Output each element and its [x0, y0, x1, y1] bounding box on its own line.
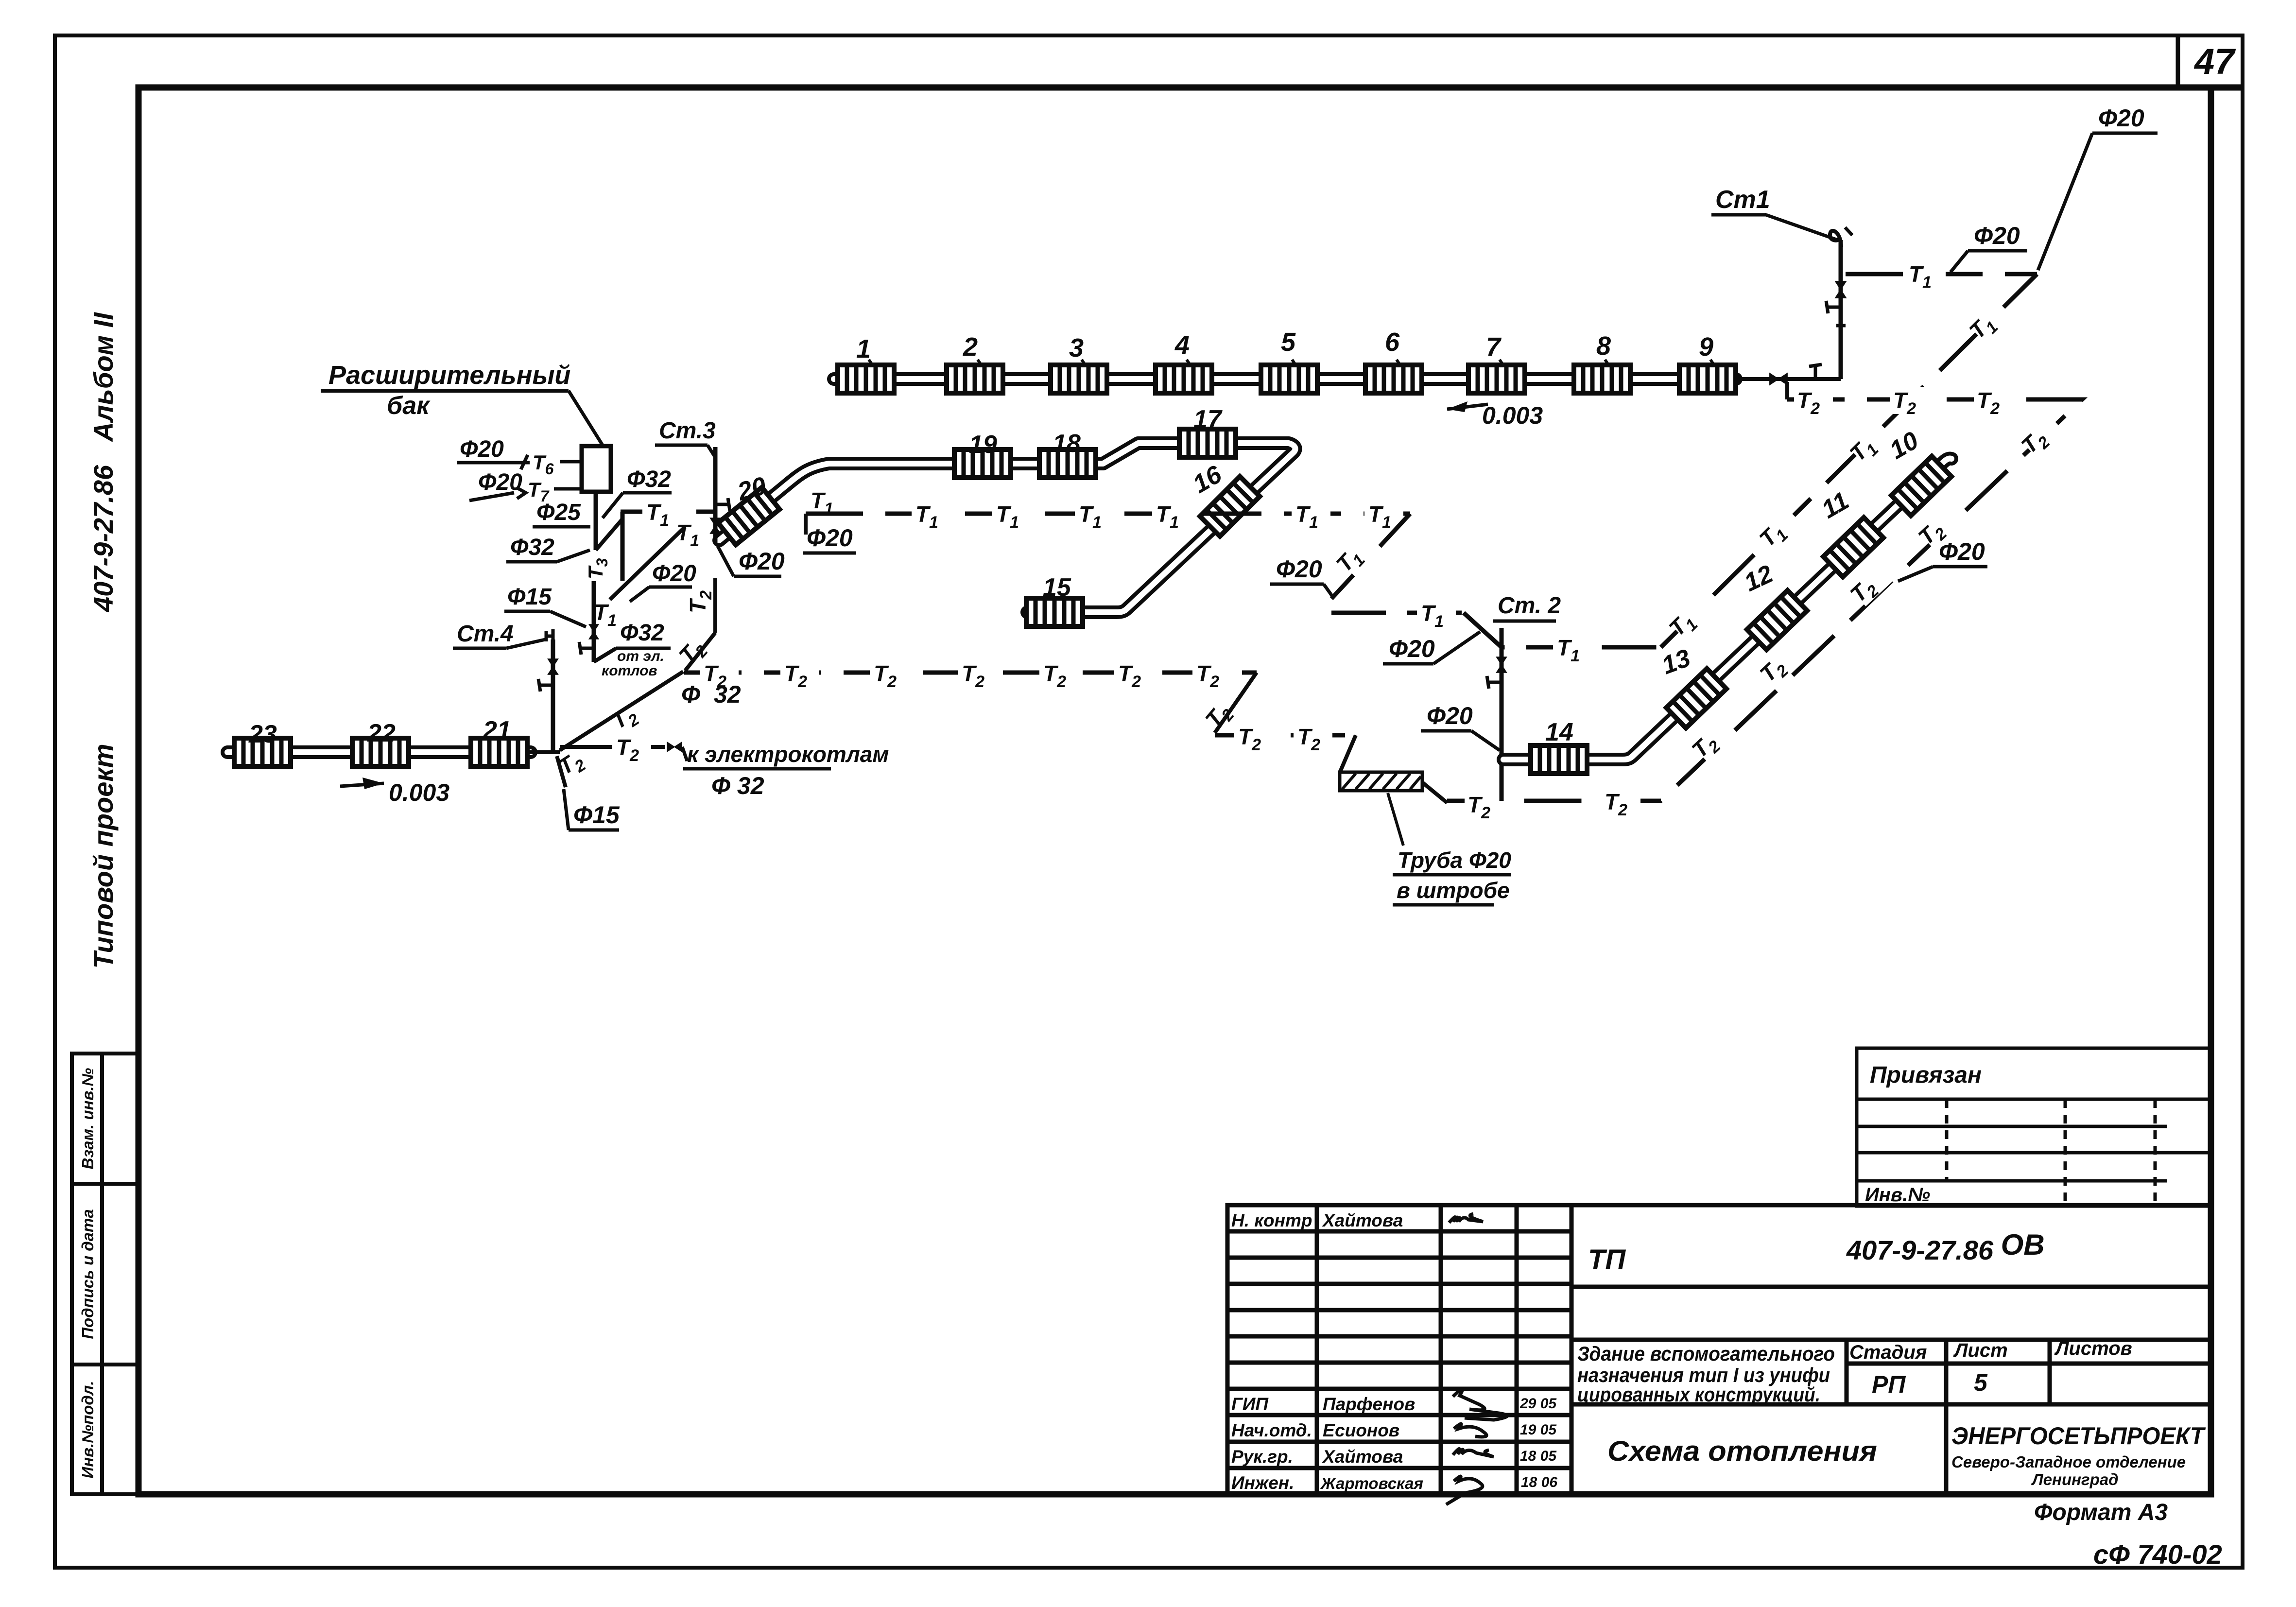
svg-text:Ф25: Ф25 [536, 500, 581, 525]
svg-text:29 05: 29 05 [1519, 1396, 1557, 1412]
svg-text:Ф20: Ф20 [1974, 222, 2020, 249]
svg-text:Ф15: Ф15 [507, 584, 552, 610]
svg-text:ЭНЕРГОСЕТЬПРОЕКТ: ЭНЕРГОСЕТЬПРОЕКТ [1951, 1422, 2206, 1450]
svg-text:Н. контр: Н. контр [1231, 1210, 1312, 1230]
svg-text:Ф20: Ф20 [1939, 538, 1985, 565]
svg-text:Ф20: Ф20 [1389, 635, 1435, 662]
svg-text:9: 9 [1699, 332, 1713, 362]
svg-text:Ф15: Ф15 [573, 801, 620, 829]
svg-text:6: 6 [1385, 328, 1400, 357]
svg-text:цированных конструкций.: цированных конструкций. [1577, 1383, 1820, 1406]
svg-text:Ф20: Ф20 [807, 524, 853, 552]
svg-text:Северо-Западное отделение: Северо-Западное отделение [1951, 1453, 2186, 1471]
svg-text:Ленинград: Ленинград [2031, 1470, 2119, 1488]
svg-text:Ф20: Ф20 [460, 436, 504, 462]
svg-text:от эл.: от эл. [617, 648, 664, 664]
svg-text:19 05: 19 05 [1520, 1422, 1557, 1438]
svg-text:Ф20: Ф20 [739, 548, 785, 575]
svg-text:Альбом II: Альбом II [88, 312, 119, 443]
svg-text:Стадия: Стадия [1849, 1342, 1927, 1363]
svg-text:Рук.гр.: Рук.гр. [1231, 1447, 1293, 1467]
svg-text:РП: РП [1872, 1371, 1906, 1398]
svg-text:Формат А3: Формат А3 [2034, 1500, 2168, 1525]
svg-text:бак: бак [387, 392, 431, 420]
svg-text:Труба Ф20: Труба Ф20 [1398, 847, 1511, 873]
svg-text:47: 47 [2193, 41, 2236, 82]
svg-text:8: 8 [1596, 331, 1611, 361]
svg-text:Ст. 2: Ст. 2 [1498, 593, 1561, 619]
svg-text:Привязан: Привязан [1870, 1062, 1982, 1088]
svg-text:2: 2 [963, 332, 978, 362]
svg-text:Листов: Листов [2054, 1338, 2132, 1359]
svg-text:Ф32: Ф32 [627, 467, 671, 492]
svg-text:Ф20: Ф20 [1427, 702, 1473, 729]
svg-text:407-9-27.86: 407-9-27.86 [88, 465, 119, 612]
svg-text:Жартовская: Жартовская [1320, 1474, 1423, 1492]
svg-text:к электрокотлам: к электрокотлам [687, 742, 889, 767]
svg-text:4: 4 [1174, 330, 1190, 360]
svg-text:21: 21 [483, 716, 511, 744]
svg-text:Ф32: Ф32 [510, 535, 554, 560]
svg-text:18: 18 [1053, 430, 1081, 458]
svg-text:Ф20: Ф20 [652, 561, 696, 587]
svg-text:Хайтова: Хайтова [1322, 1447, 1403, 1467]
svg-text:Ф20: Ф20 [478, 469, 522, 495]
svg-text:19: 19 [969, 431, 997, 459]
svg-text:Здание вспомогательного: Здание вспомогательного [1577, 1342, 1835, 1365]
svg-text:Ст1: Ст1 [1715, 186, 1770, 214]
svg-text:Парфенов: Парфенов [1323, 1394, 1415, 1414]
svg-text:ГИП: ГИП [1231, 1394, 1269, 1414]
svg-text:3: 3 [1069, 333, 1084, 363]
svg-text:1: 1 [856, 334, 871, 363]
svg-text:Ст.4: Ст.4 [457, 621, 514, 647]
svg-text:Взам. инв.№: Взам. инв.№ [79, 1068, 97, 1169]
svg-text:7: 7 [1486, 332, 1502, 362]
svg-text:14: 14 [1545, 718, 1573, 746]
svg-text:Типовой проект: Типовой проект [88, 743, 119, 968]
svg-text:15: 15 [1043, 573, 1071, 602]
svg-text:Инжен.: Инжен. [1231, 1473, 1294, 1493]
svg-text:Нач.отд.: Нач.отд. [1231, 1420, 1312, 1440]
svg-text:Подпись и дата: Подпись и дата [79, 1209, 97, 1339]
svg-text:Инв.№: Инв.№ [1865, 1184, 1930, 1206]
svg-text:Ф20: Ф20 [2098, 104, 2144, 132]
svg-text:18 06: 18 06 [1521, 1474, 1557, 1490]
svg-text:Схема отопления: Схема отопления [1607, 1435, 1877, 1467]
svg-text:Хайтова: Хайтова [1322, 1210, 1403, 1230]
svg-text:в штробе: в штробе [1397, 878, 1510, 903]
svg-text:23: 23 [248, 720, 277, 748]
svg-text:0.003: 0.003 [1482, 402, 1543, 429]
svg-text:22: 22 [367, 719, 396, 747]
svg-text:ТП: ТП [1588, 1244, 1626, 1276]
svg-text:Инв.№подл.: Инв.№подл. [79, 1381, 97, 1479]
svg-text:сФ 740-02: сФ 740-02 [2093, 1539, 2222, 1570]
svg-text:Ф32: Ф32 [620, 620, 664, 646]
svg-text:Ст.3: Ст.3 [659, 418, 716, 444]
svg-text:17: 17 [1193, 405, 1223, 433]
svg-text:Ф 32: Ф 32 [711, 772, 764, 799]
svg-text:5: 5 [1281, 328, 1296, 357]
svg-text:Ф20: Ф20 [1276, 555, 1322, 583]
svg-text:0.003: 0.003 [389, 779, 449, 806]
svg-text:Лист: Лист [1953, 1340, 2008, 1361]
svg-text:Есионов: Есионов [1323, 1420, 1399, 1440]
svg-text:котлов: котлов [602, 663, 657, 679]
svg-text:Расширительный: Расширительный [328, 361, 570, 390]
svg-text:18 05: 18 05 [1520, 1448, 1557, 1464]
svg-text:5: 5 [1974, 1369, 1988, 1396]
